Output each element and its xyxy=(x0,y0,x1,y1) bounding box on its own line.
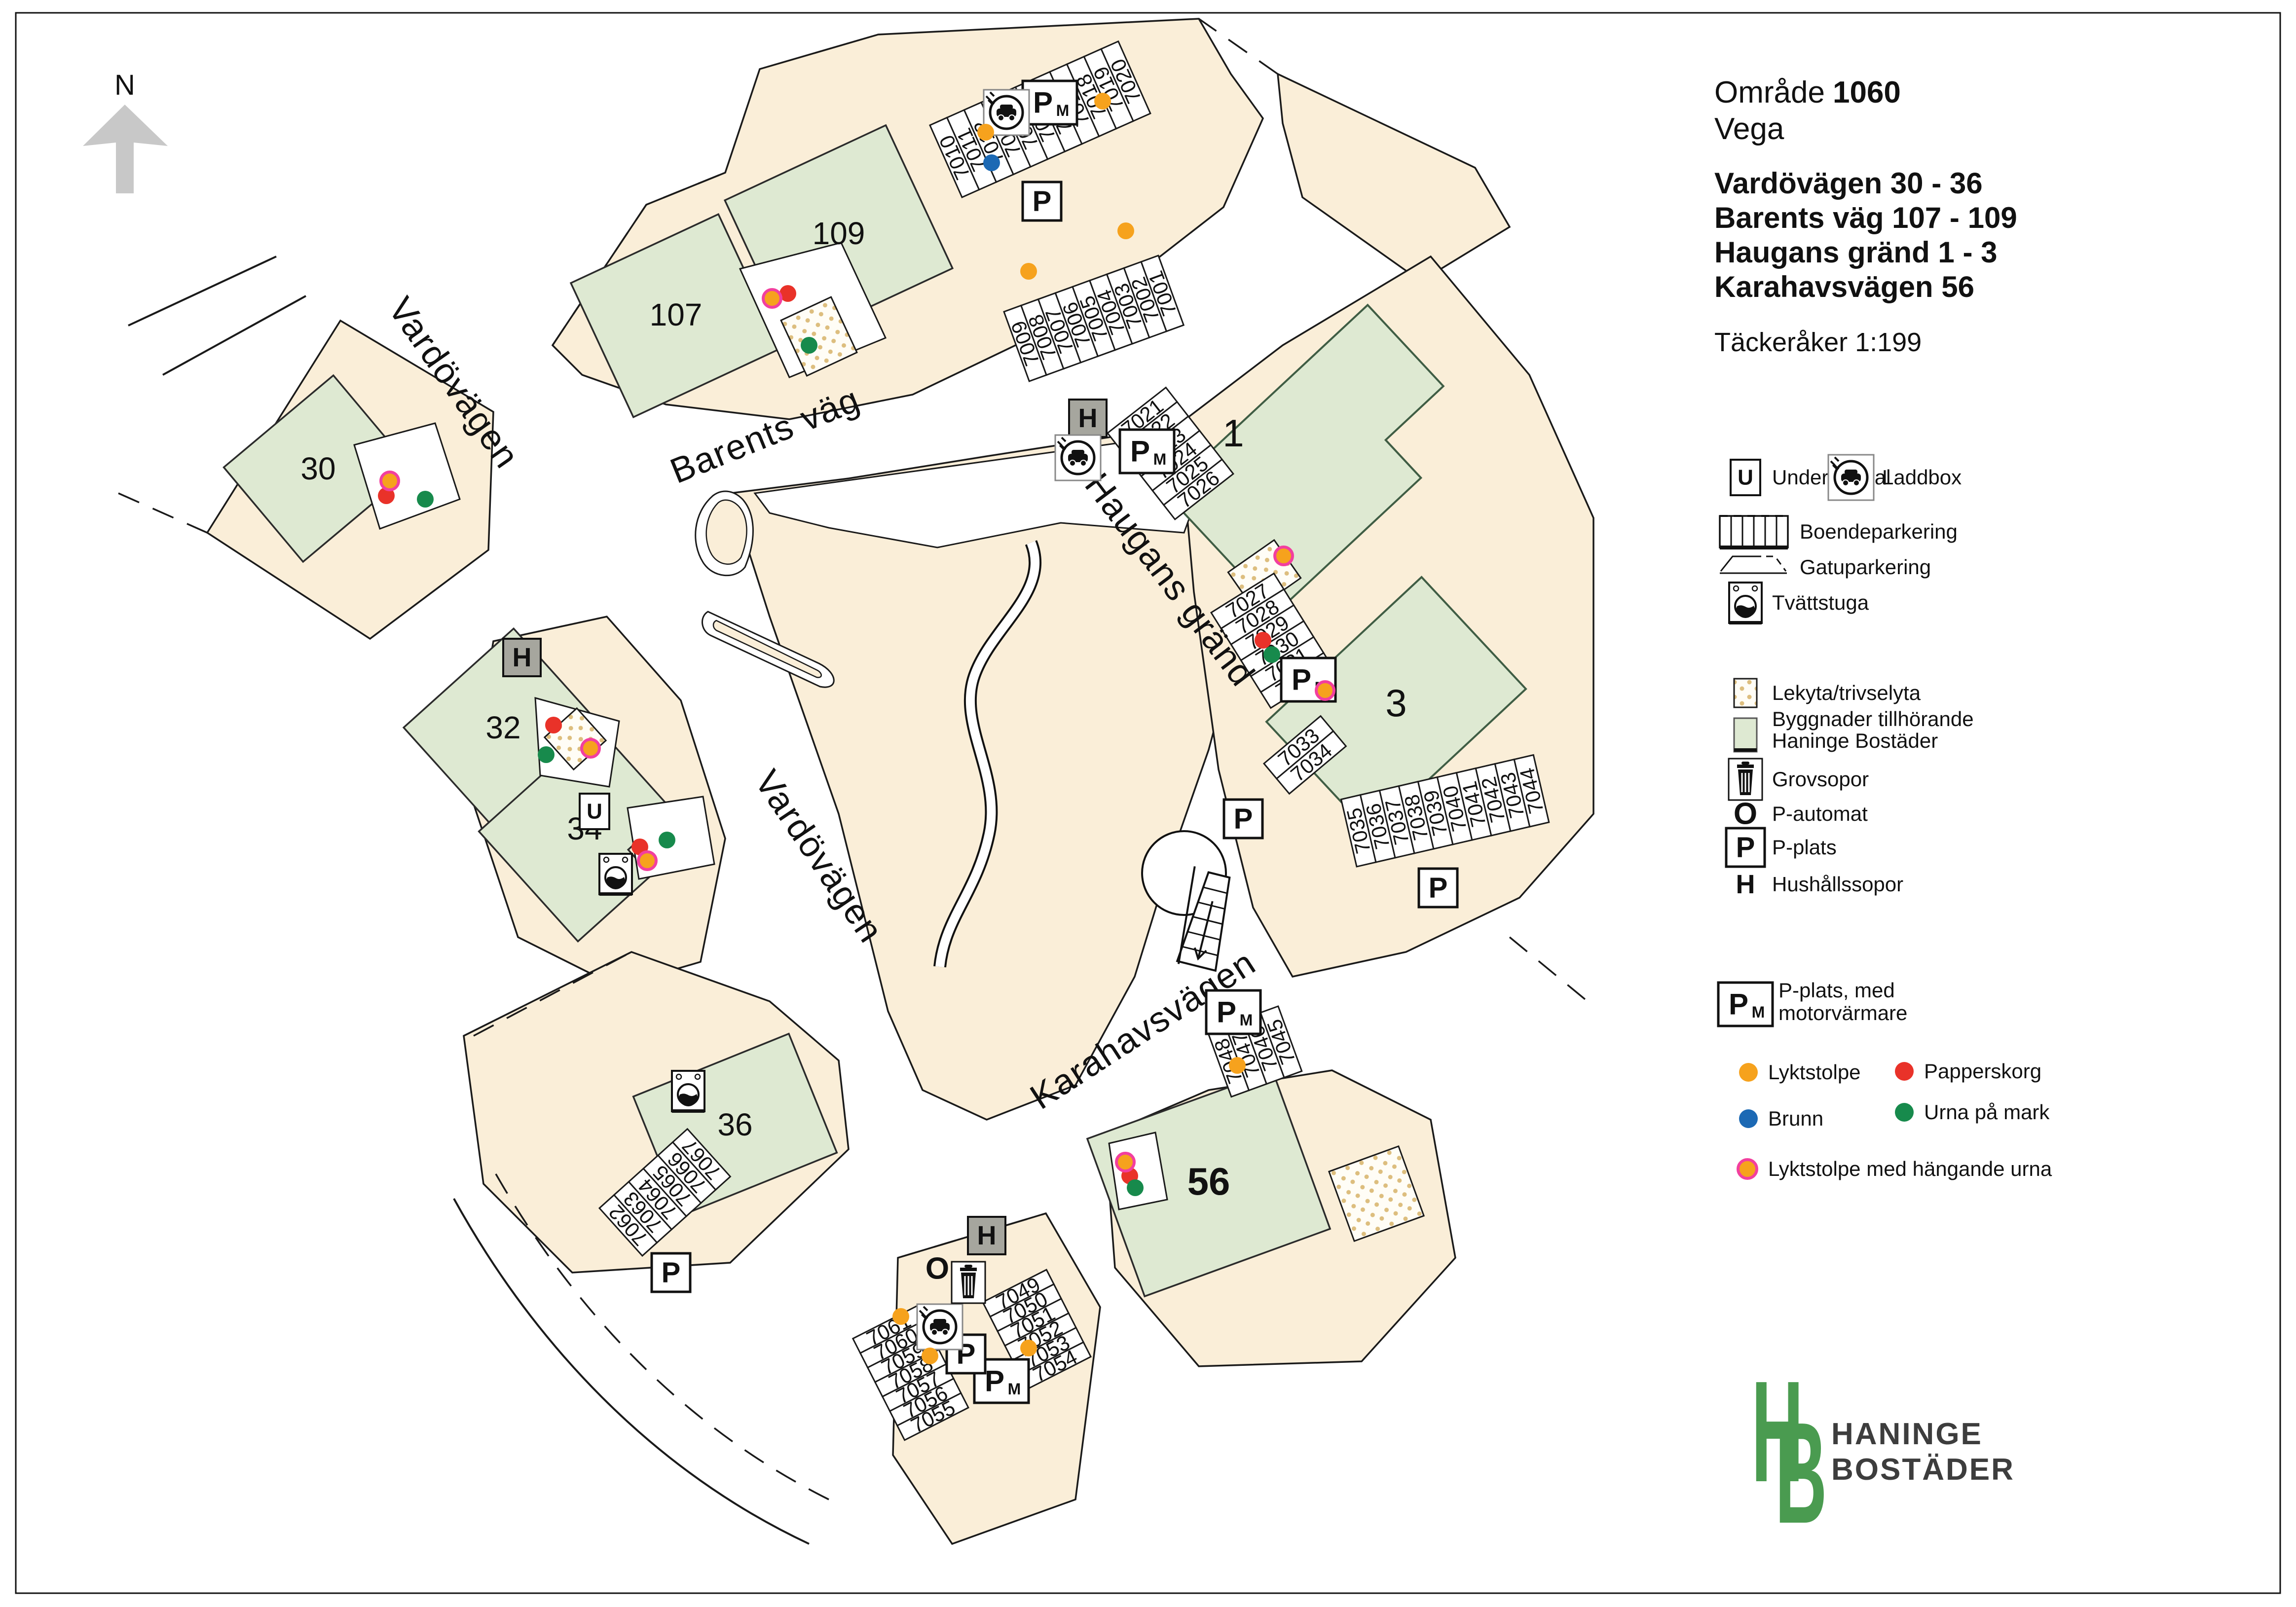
legend-label: Lyktstolpe med hängande urna xyxy=(1768,1157,2052,1180)
papperskorg-dot xyxy=(545,717,562,733)
urna-dot xyxy=(538,746,555,763)
legend-label: Lekyta/trivselyta xyxy=(1772,681,1921,704)
pm-sign xyxy=(1023,81,1077,124)
legend-label: P-plats xyxy=(1772,836,1837,859)
road-edge xyxy=(128,256,276,326)
legend-brunn-dot xyxy=(1739,1109,1758,1128)
building-label-32: 32 xyxy=(485,710,520,745)
lyktstolpe-urna-dot xyxy=(582,739,599,757)
legend-p-plats-icon xyxy=(1726,828,1765,867)
pm-sign xyxy=(1120,430,1174,473)
legend-label: Hushållssopor xyxy=(1772,873,1903,896)
legend-lekyta-icon xyxy=(1734,679,1757,707)
lyktstolpe-urna-dot xyxy=(381,472,399,490)
lyktstolpe-dot xyxy=(977,124,994,141)
legend-laddbox-icon xyxy=(1828,455,1874,500)
legend-lyktstolpe-urna-dot xyxy=(1738,1160,1757,1178)
legend-tvattstuga-icon xyxy=(1729,583,1762,624)
legend-label: Papperskorg xyxy=(1924,1059,2041,1083)
legend-p-automat-icon: O xyxy=(1734,797,1757,831)
building-label-109: 109 xyxy=(813,216,865,251)
grovsopor-icon xyxy=(952,1262,985,1303)
legend-label: Boendeparkering xyxy=(1800,520,1958,543)
urna-dot xyxy=(659,832,675,848)
legend: Undercentral Laddbox Boendeparkering Gat… xyxy=(1718,455,2052,1180)
building-label-107: 107 xyxy=(650,297,703,332)
legend-urna-dot xyxy=(1895,1103,1914,1122)
p-automat-marker: O xyxy=(926,1252,949,1286)
map-canvas: P P M H U xyxy=(0,0,2296,1607)
hushallssopor-sign xyxy=(1069,400,1107,437)
tvattstuga-icon xyxy=(599,854,632,896)
legend-lyktstolpe-dot xyxy=(1739,1063,1758,1082)
north-arrow-shape xyxy=(83,105,168,193)
legend-label: Grovsopor xyxy=(1772,767,1869,791)
legend-label: Brunn xyxy=(1768,1107,1823,1130)
lyktstolpe-urna-dot xyxy=(1116,1153,1134,1171)
area-title: Område1060 xyxy=(1714,75,1901,110)
hushallssopor-sign xyxy=(503,639,541,676)
urna-dot xyxy=(801,337,817,354)
building-label-1: 1 xyxy=(1222,411,1244,455)
lyktstolpe-urna-dot xyxy=(1275,547,1293,565)
legend-boendeparkering-icon xyxy=(1720,516,1788,549)
boundary-dashes xyxy=(118,493,207,533)
map-area: 7010 7011 7012 7013 7014 7015 7016 xyxy=(118,19,1593,1544)
laddbox-icon xyxy=(917,1304,963,1350)
legend-byggnader-icon xyxy=(1734,718,1757,752)
legend-label: Lyktstolpe xyxy=(1768,1060,1861,1084)
info-panel: Område1060 Vega Vardövägen 30 - 36 Baren… xyxy=(1714,75,2052,1553)
brunn-dot xyxy=(983,154,1000,171)
legend-label: Laddbox xyxy=(1882,466,1962,489)
legend-grovsopor-icon xyxy=(1729,759,1762,800)
logo-b-letter: B xyxy=(1775,1392,1827,1553)
legend-label: Tvättstuga xyxy=(1772,591,1869,614)
lyktstolpe-urna-dot xyxy=(1316,682,1334,699)
lyktstolpe-dot xyxy=(1117,222,1134,239)
legend-undercentral-icon xyxy=(1731,460,1760,495)
parcel-top-right-strip xyxy=(1278,74,1510,281)
site-map-sheet: P P M H U xyxy=(0,0,2296,1607)
boundary-dashes xyxy=(1510,937,1593,1006)
p-sign xyxy=(1023,182,1061,220)
legend-hushallssopor-icon: H xyxy=(1736,870,1755,899)
address-line: Karahavsvägen 56 xyxy=(1714,270,1974,303)
lyktstolpe-dot xyxy=(1229,1057,1246,1074)
urna-dot xyxy=(1263,646,1280,663)
p-sign xyxy=(1419,869,1457,907)
urna-dot xyxy=(417,491,434,508)
laddbox-icon xyxy=(1055,435,1101,480)
address-line: Haugans gränd 1 - 3 xyxy=(1714,236,1997,269)
haninge-bostader-logo: H B HANINGE BOSTÄDER xyxy=(1751,1351,2015,1553)
logo-text-line1: HANINGE xyxy=(1831,1417,1983,1451)
hushallssopor-sign xyxy=(968,1217,1005,1254)
legend-label: motorvärmare xyxy=(1778,1001,1907,1024)
building-label-3: 3 xyxy=(1385,681,1407,725)
legend-label: Gatuparkering xyxy=(1800,555,1931,579)
tvattstuga-icon xyxy=(672,1071,704,1113)
lyktstolpe-urna-dot xyxy=(763,290,781,307)
north-label: N xyxy=(114,69,135,101)
lyktstolpe-urna-dot xyxy=(638,852,656,870)
legend-pm-icon xyxy=(1718,983,1773,1026)
legend-papperskorg-dot xyxy=(1895,1062,1914,1081)
lyktstolpe-dot xyxy=(892,1308,909,1325)
p-sign xyxy=(652,1253,690,1292)
papperskorg-dot xyxy=(1255,632,1271,649)
area-name: Vega xyxy=(1714,112,1784,146)
legend-label: P-automat xyxy=(1772,802,1868,825)
legend-label: Urna på mark xyxy=(1924,1100,2050,1124)
p-sign xyxy=(1224,800,1262,838)
logo-text-line2: BOSTÄDER xyxy=(1831,1453,2015,1487)
north-arrow: N xyxy=(83,69,168,193)
legend-gatuparkering-icon xyxy=(1720,556,1787,573)
road-edge xyxy=(163,296,306,375)
lyktstolpe-dot xyxy=(1020,263,1037,280)
pm-sign xyxy=(1206,990,1260,1034)
building-label-30: 30 xyxy=(300,451,335,486)
scale-note: Täckeråker 1:199 xyxy=(1714,328,1922,357)
legend-label: Byggnader tillhörande xyxy=(1772,707,1974,730)
building-label-36: 36 xyxy=(717,1107,752,1142)
address-line: Vardövägen 30 - 36 xyxy=(1714,167,1983,200)
building-label-56: 56 xyxy=(1187,1160,1230,1203)
lyktstolpe-dot xyxy=(922,1348,938,1364)
urna-dot xyxy=(1127,1179,1144,1196)
legend-label: P-plats, med xyxy=(1778,979,1895,1002)
teardrop-island xyxy=(706,500,747,564)
undercentral-sign xyxy=(580,794,609,829)
legend-label: Haninge Bostäder xyxy=(1772,729,1938,752)
lyktstolpe-dot xyxy=(1020,1340,1037,1356)
address-line: Barents väg 107 - 109 xyxy=(1714,201,2017,234)
lyktstolpe-dot xyxy=(1094,93,1111,110)
